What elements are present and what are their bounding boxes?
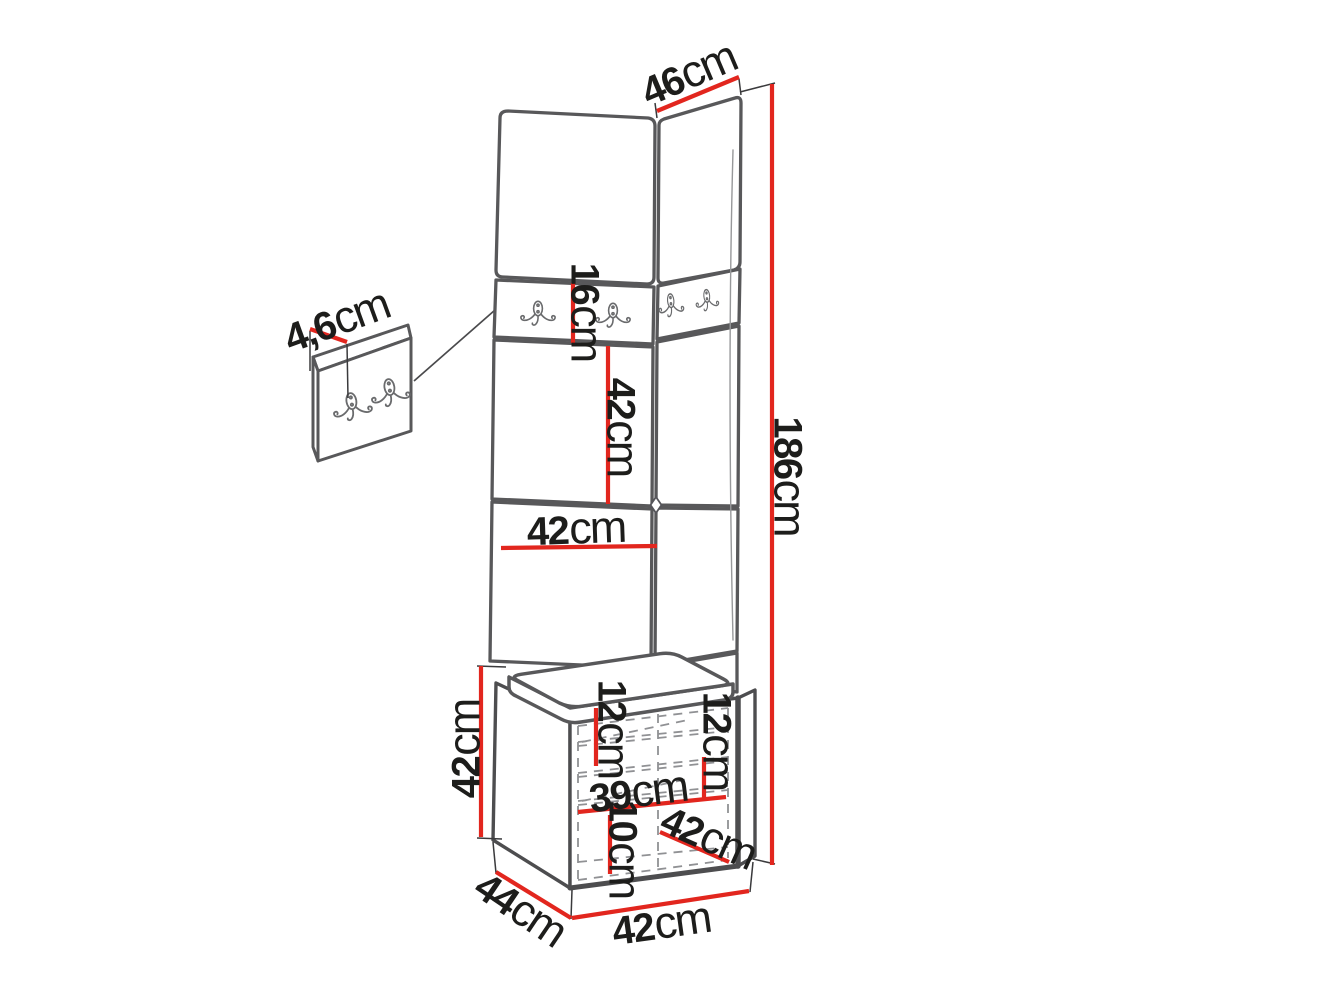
dim-line-42-horiz bbox=[501, 546, 657, 548]
diagram-canvas bbox=[0, 0, 1324, 993]
wall-tile bbox=[492, 340, 653, 506]
dim-line-4-6 bbox=[310, 329, 347, 342]
wall-tile bbox=[655, 508, 738, 665]
detail-tile bbox=[313, 325, 411, 461]
wall-tile bbox=[658, 98, 741, 284]
wall-tile bbox=[656, 326, 739, 506]
wall-tile bbox=[490, 502, 652, 668]
detail-leader-line bbox=[414, 303, 503, 381]
wall-panel-left-column bbox=[490, 111, 655, 668]
wall-panel-right-column bbox=[655, 98, 741, 692]
dim-line-42-width bbox=[572, 891, 749, 918]
diagram-stage: 46cm 186cm 4,6cm 16cm 42cm 42cm 42cm 12c… bbox=[0, 0, 1324, 993]
wall-tile bbox=[496, 111, 655, 284]
